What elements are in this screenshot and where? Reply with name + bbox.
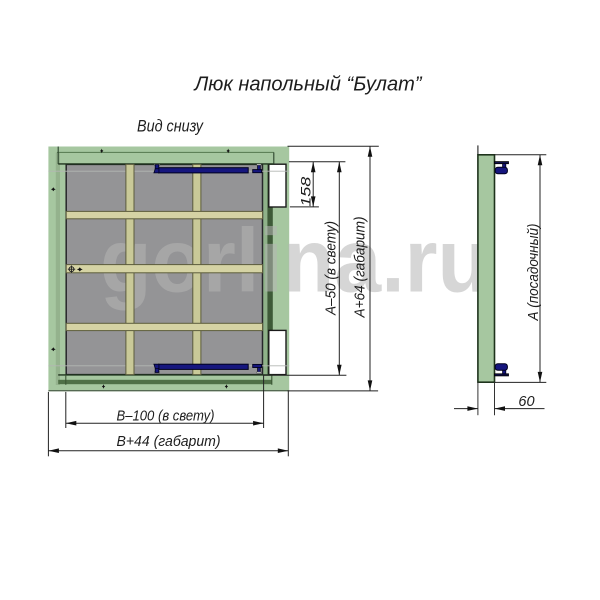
svg-text:А+64 (габарит): А+64 (габарит) xyxy=(351,217,368,319)
svg-text:60: 60 xyxy=(518,394,534,410)
svg-text:А–50 (в свету): А–50 (в свету) xyxy=(323,221,340,316)
svg-text:В–100 (в свету): В–100 (в свету) xyxy=(117,407,215,424)
svg-text:В+44 (габарит): В+44 (габарит) xyxy=(117,433,221,450)
svg-text:gorlina.ru: gorlina.ru xyxy=(100,212,489,312)
svg-text:158: 158 xyxy=(298,177,314,207)
svg-text:Вид снизу: Вид снизу xyxy=(137,117,204,136)
svg-text:А (посадочный): А (посадочный) xyxy=(525,224,542,322)
svg-text:Люк напольный “Булат”: Люк напольный “Булат” xyxy=(192,74,422,96)
